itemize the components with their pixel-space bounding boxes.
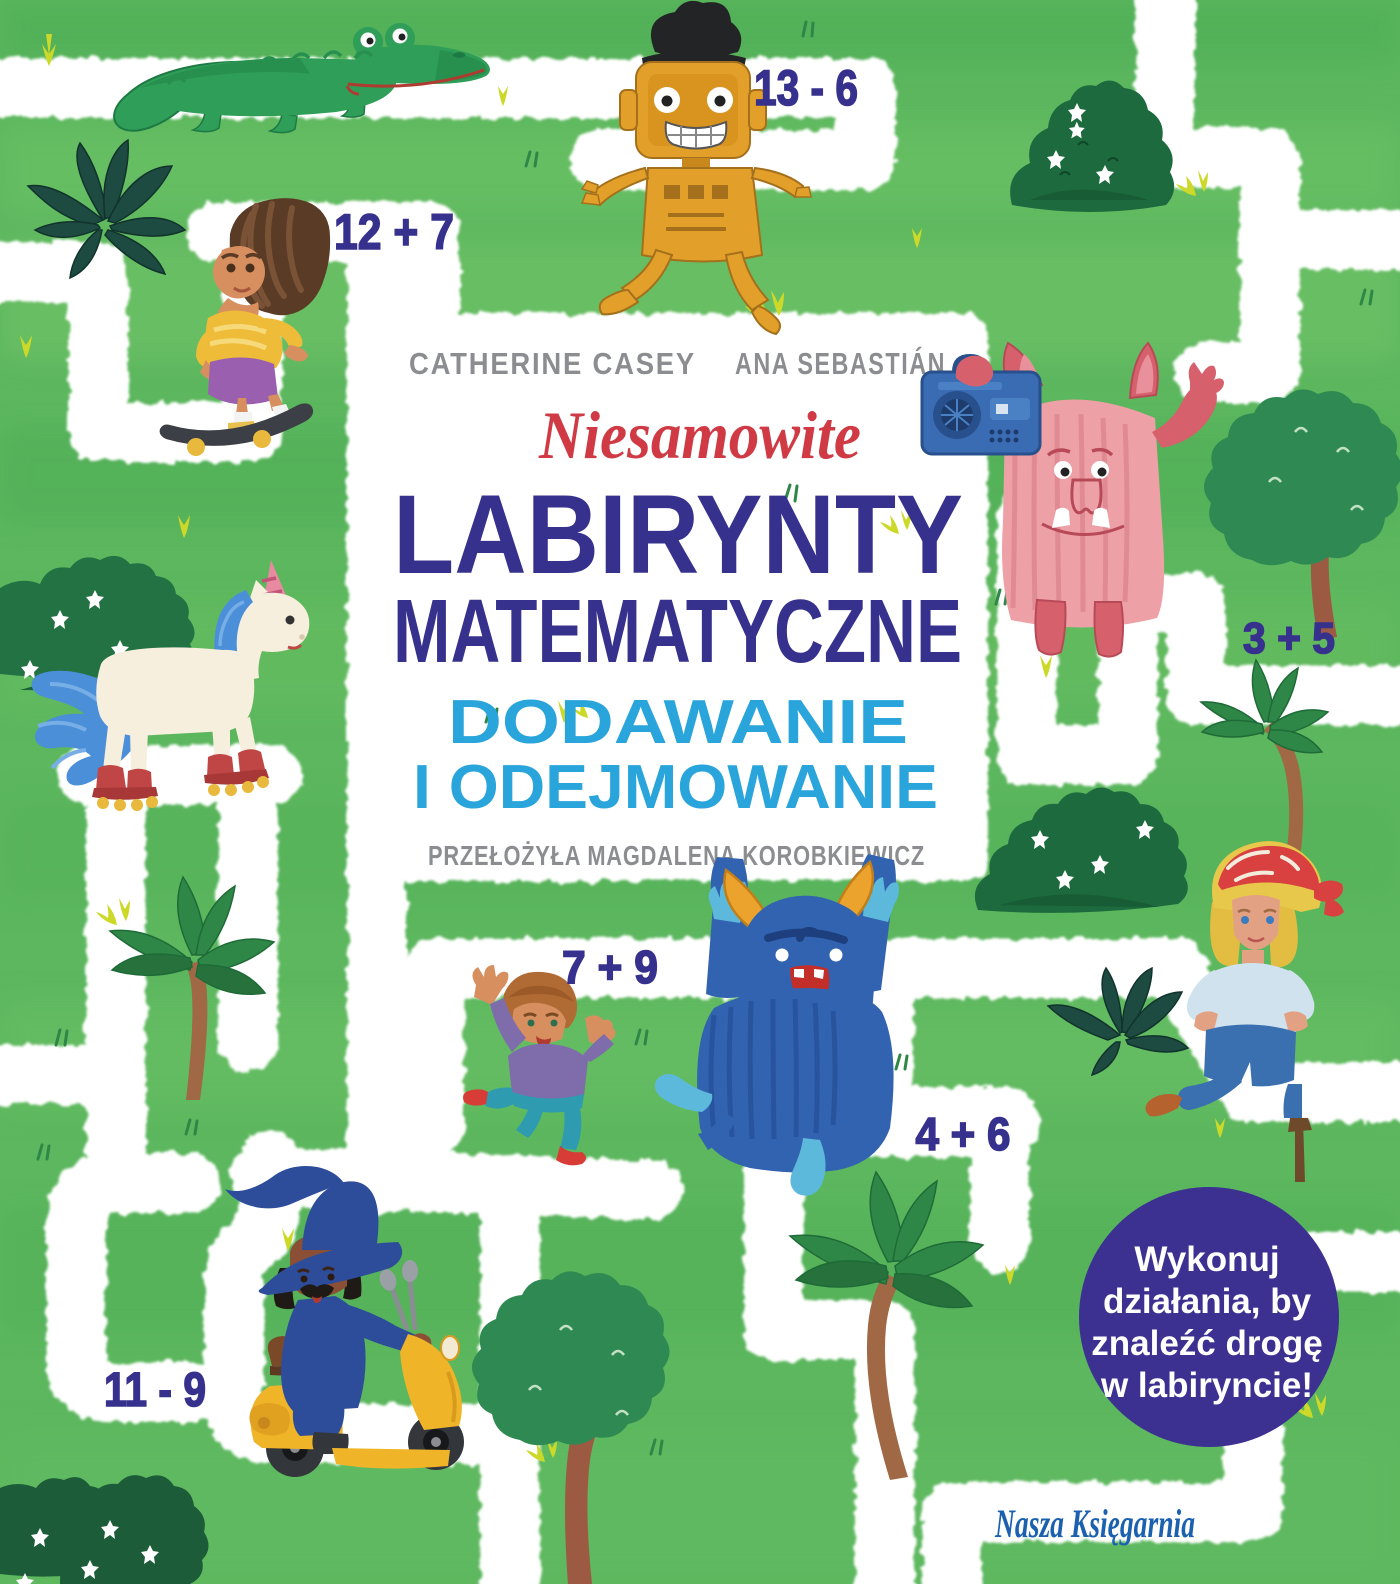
svg-text:I ODEJMOWANIE: I ODEJMOWANIE: [413, 753, 938, 822]
svg-text:4 + 6: 4 + 6: [916, 1108, 1011, 1160]
svg-text:CATHERINE CASEY: CATHERINE CASEY: [409, 346, 696, 381]
svg-text:w labiryncie!: w labiryncie!: [1100, 1366, 1313, 1405]
svg-text:DODAWANIE: DODAWANIE: [448, 688, 908, 757]
svg-text:11 - 9: 11 - 9: [104, 1364, 206, 1417]
svg-text:znaleźć drogę: znaleźć drogę: [1091, 1324, 1322, 1363]
svg-text:12 + 7: 12 + 7: [334, 204, 454, 260]
svg-text:działania, by: działania, by: [1103, 1282, 1312, 1321]
svg-text:MATEMATYCZNE: MATEMATYCZNE: [393, 582, 962, 682]
svg-text:ANA SEBASTIÁN: ANA SEBASTIÁN: [735, 346, 946, 381]
svg-text:Nasza Księgarnia: Nasza Księgarnia: [994, 1501, 1195, 1546]
svg-text:3 + 5: 3 + 5: [1243, 614, 1335, 663]
svg-text:PRZEŁOŻYŁA MAGDALENA KOROBKIEW: PRZEŁOŻYŁA MAGDALENA KOROBKIEWICZ: [428, 840, 925, 871]
svg-text:13 - 6: 13 - 6: [754, 60, 858, 116]
svg-text:Niesamowite: Niesamowite: [538, 397, 861, 473]
svg-text:LABIRYNTY: LABIRYNTY: [393, 472, 963, 597]
svg-text:7 + 9: 7 + 9: [562, 941, 658, 993]
svg-text:Wykonuj: Wykonuj: [1134, 1240, 1279, 1279]
